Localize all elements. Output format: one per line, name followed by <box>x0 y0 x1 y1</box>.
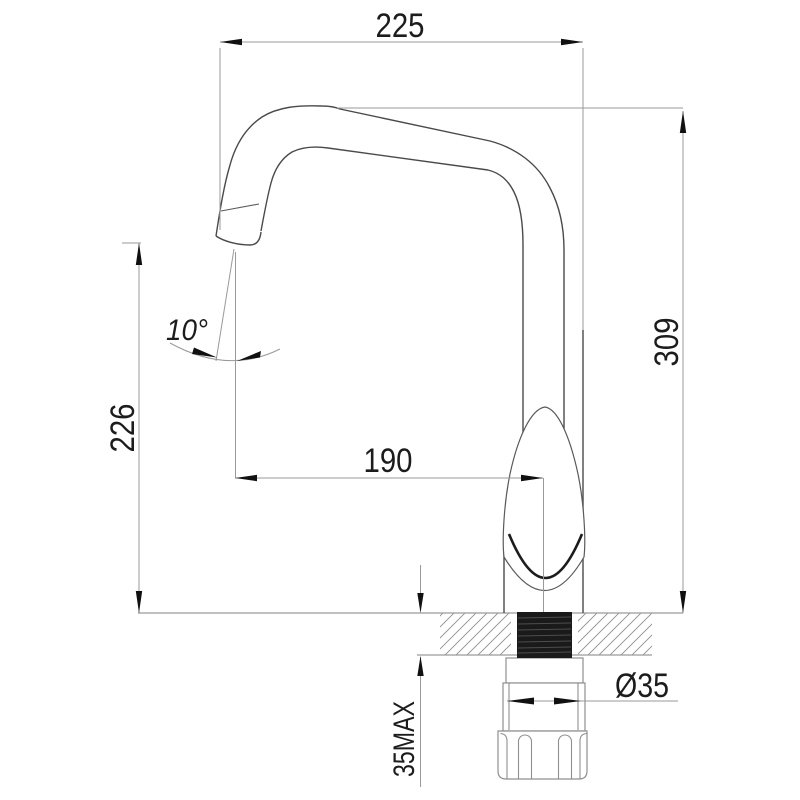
spout-inner-curve <box>261 147 523 568</box>
arrow-down <box>680 591 686 613</box>
dim-label-309: 309 <box>648 318 686 367</box>
dim-label-35max: 35MAX <box>388 701 421 777</box>
aerator-joint-line <box>221 204 259 211</box>
dimension-226: 226 <box>104 243 142 613</box>
faucet-outline <box>216 106 585 613</box>
angle-ref-line <box>216 249 234 361</box>
dimension-190: 190 <box>235 252 544 612</box>
arrow-down <box>417 593 423 613</box>
dim-label-225: 225 <box>376 7 425 45</box>
arrow-left <box>235 475 257 481</box>
dim-label-10deg: 10° <box>166 314 208 347</box>
deck-hatch-right <box>578 614 652 656</box>
arrow-up <box>136 243 142 265</box>
countertop-section <box>138 613 683 655</box>
arrow-up <box>417 656 423 676</box>
angle-annotation-10deg: 10° <box>166 249 280 361</box>
grip-nut <box>498 731 587 779</box>
arrow-angle-left <box>192 348 217 358</box>
dim-label-226: 226 <box>104 404 142 453</box>
dim-label-190: 190 <box>364 442 413 480</box>
mounting-washer <box>506 658 583 683</box>
drawing-canvas: 225 309 226 190 10° Ø35 <box>0 0 800 800</box>
arrow-up <box>680 111 686 133</box>
dimension-35max: 35MAX <box>388 565 424 787</box>
deck-hatch-left <box>440 614 511 656</box>
arrow-right <box>561 39 583 45</box>
dim-label-dia35: Ø35 <box>615 667 669 705</box>
dimension-225: 225 <box>220 7 583 330</box>
mounting-hardware <box>498 658 587 779</box>
arrow-left <box>220 39 242 45</box>
threaded-shank <box>517 612 572 658</box>
arrow-down <box>136 591 142 613</box>
mounting-flange <box>503 683 585 731</box>
aerator-tip <box>216 232 261 245</box>
faucet-technical-drawing: 225 309 226 190 10° Ø35 <box>0 0 800 800</box>
